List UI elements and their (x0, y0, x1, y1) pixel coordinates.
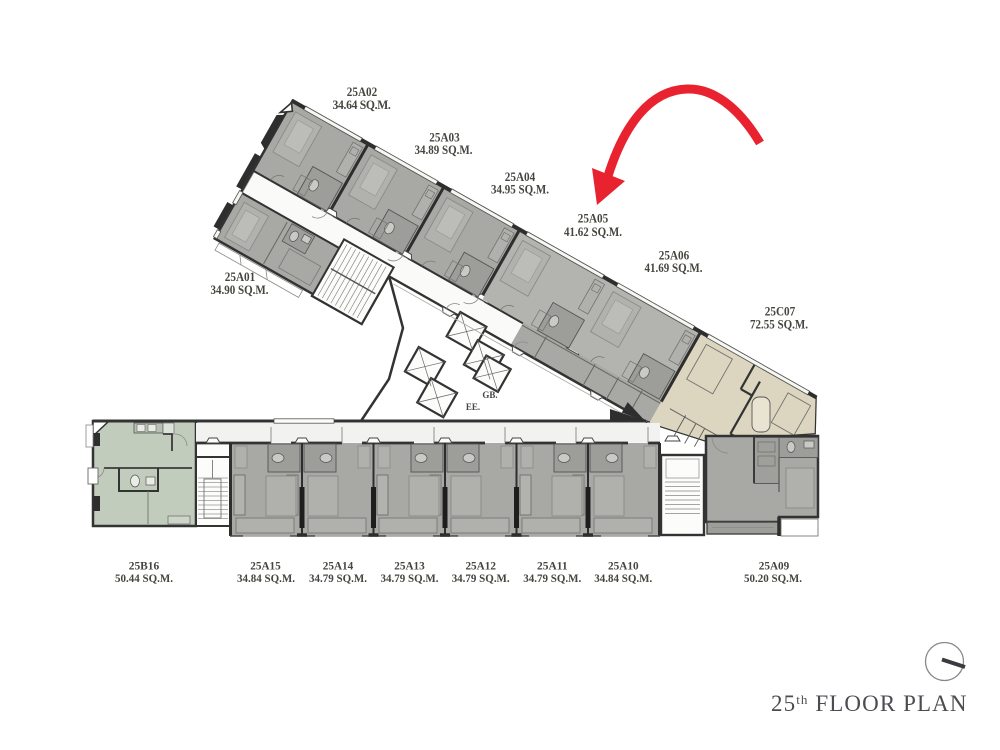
svg-text:25A05: 25A05 (578, 212, 609, 226)
svg-text:50.44 SQ.M.: 50.44 SQ.M. (115, 571, 173, 585)
svg-text:41.62 SQ.M.: 41.62 SQ.M. (564, 225, 622, 239)
svg-text:34.79 SQ.M.: 34.79 SQ.M. (381, 571, 439, 585)
svg-text:50.20 SQ.M.: 50.20 SQ.M. (744, 571, 802, 585)
svg-text:34.84 SQ.M.: 34.84 SQ.M. (237, 571, 295, 585)
svg-text:34.64 SQ.M.: 34.64 SQ.M. (333, 98, 391, 112)
svg-text:41.69 SQ.M.: 41.69 SQ.M. (645, 261, 703, 275)
svg-text:34.84 SQ.M.: 34.84 SQ.M. (594, 571, 652, 585)
svg-text:34.79 SQ.M.: 34.79 SQ.M. (523, 571, 581, 585)
svg-text:25A01: 25A01 (225, 270, 256, 284)
svg-text:GB.: GB. (482, 390, 497, 400)
svg-text:25A02: 25A02 (347, 85, 378, 99)
svg-text:34.89 SQ.M.: 34.89 SQ.M. (415, 143, 473, 157)
svg-text:34.79 SQ.M.: 34.79 SQ.M. (309, 571, 367, 585)
svg-text:EE.: EE. (466, 402, 480, 412)
svg-text:72.55 SQ.M.: 72.55 SQ.M. (750, 318, 808, 332)
svg-text:34.79 SQ.M.: 34.79 SQ.M. (452, 571, 510, 585)
svg-text:34.90 SQ.M.: 34.90 SQ.M. (211, 283, 269, 297)
svg-text:25C07: 25C07 (765, 305, 796, 319)
svg-text:34.95 SQ.M.: 34.95 SQ.M. (491, 183, 549, 197)
